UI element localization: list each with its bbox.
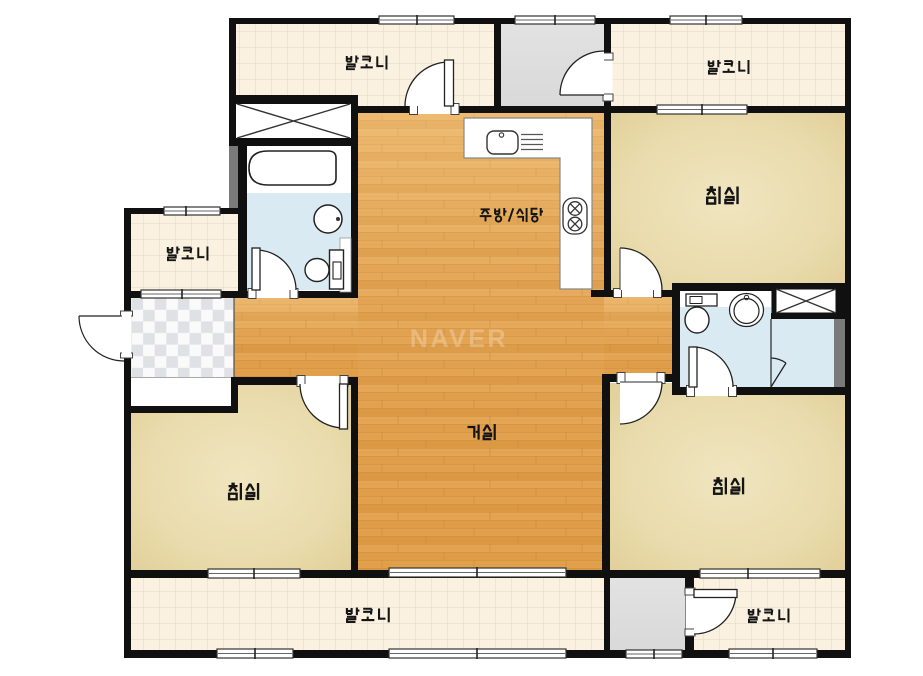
svg-text:NAVER: NAVER (410, 325, 508, 353)
